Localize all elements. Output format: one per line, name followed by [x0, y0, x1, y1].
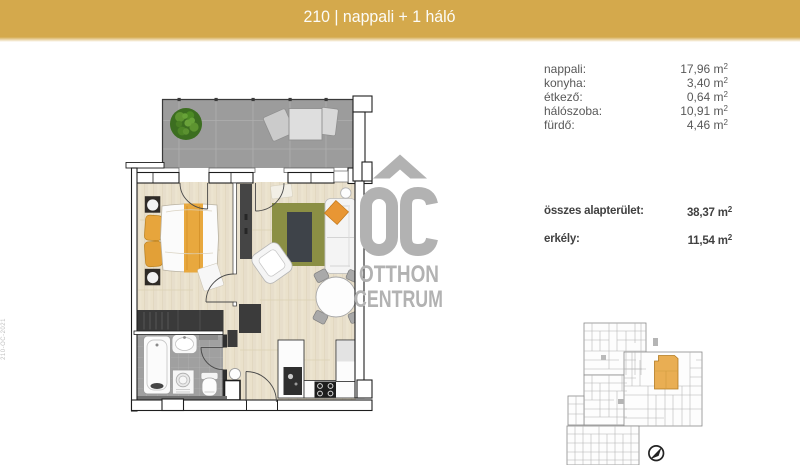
- svg-text:OTTHON: OTTHON: [359, 261, 439, 288]
- svg-text:CENTRUM: CENTRUM: [354, 286, 443, 313]
